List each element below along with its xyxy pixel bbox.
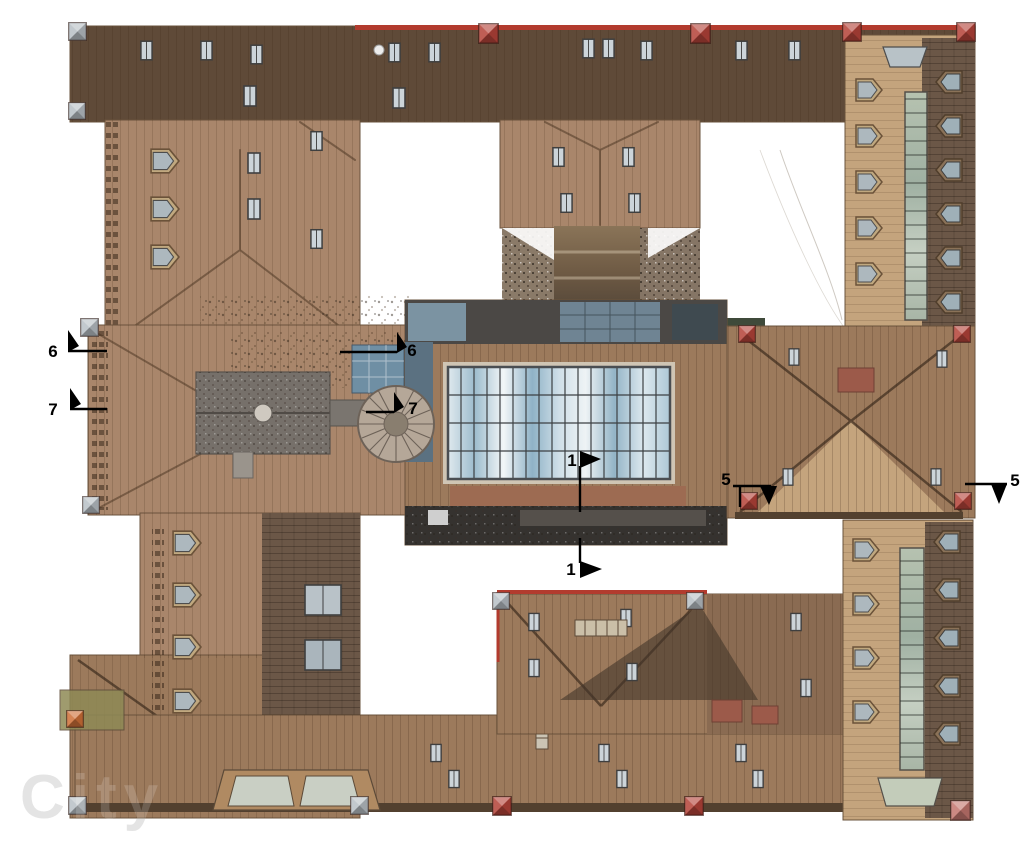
corner-turret-pink <box>951 801 971 821</box>
section-label: 1 <box>566 560 575 579</box>
corner-turret-orange <box>67 711 84 728</box>
chimney-bank <box>575 620 627 636</box>
section-flag <box>580 561 602 578</box>
skylight <box>789 349 799 365</box>
section-label: 6 <box>48 342 57 361</box>
skylight <box>553 148 564 167</box>
corner-turret-gray <box>69 797 87 815</box>
skylight <box>783 469 793 485</box>
skylight <box>641 41 652 60</box>
skylight <box>753 770 763 787</box>
church-tower-stub <box>233 452 253 478</box>
building-orthophoto: 6 7 6 7 1 <box>0 0 1024 843</box>
corner-turret-gray <box>687 593 704 610</box>
corner-turret-red <box>741 493 758 510</box>
skylight <box>244 86 256 106</box>
skylight <box>931 469 941 485</box>
lower-roof-band <box>450 486 686 506</box>
brick-roof-hatch <box>838 368 874 392</box>
corner-turret-red <box>957 23 976 42</box>
skylight <box>561 194 572 213</box>
skylight <box>449 770 459 787</box>
corner-turret-red <box>955 493 972 510</box>
wire-artifact <box>760 150 846 330</box>
skylight <box>311 132 322 151</box>
section-label: 5 <box>721 470 730 489</box>
bottom-right-wing-roof <box>843 520 973 820</box>
skylight <box>248 153 260 173</box>
top-center-wing-roof <box>500 120 700 228</box>
top-roof-strip <box>70 25 975 122</box>
skylight <box>529 613 539 630</box>
skylight <box>629 194 640 213</box>
skylight <box>599 744 609 761</box>
corner-turret-red <box>954 326 971 343</box>
section-flag <box>68 330 79 352</box>
corner-turret-gray <box>83 497 100 514</box>
skylight <box>583 39 594 58</box>
skylight <box>431 744 441 761</box>
section-label: 5 <box>1010 471 1019 490</box>
corner-turret-red <box>493 797 512 816</box>
skylight <box>141 41 152 60</box>
corner-turret-gray <box>81 319 99 337</box>
section-flag <box>991 484 1007 504</box>
skylight <box>603 39 614 58</box>
skylight <box>251 45 262 64</box>
skylight <box>736 41 747 60</box>
top-right-wing-roof <box>845 35 975 332</box>
roof-skylight-pentagon <box>878 778 942 806</box>
skylight <box>627 663 637 680</box>
section-label: 7 <box>48 400 57 419</box>
section-label: 7 <box>408 399 417 418</box>
corner-turret-red <box>685 797 704 816</box>
skylight <box>937 351 947 367</box>
section-label: 6 <box>407 341 416 360</box>
skylight <box>623 148 634 167</box>
section-label: 1 <box>567 451 576 470</box>
dome-lantern <box>384 412 408 436</box>
corner-turret-gray <box>69 103 86 120</box>
roof-antenna-ball <box>374 45 384 55</box>
church-cupola <box>254 404 272 422</box>
skylight <box>801 679 811 696</box>
skylight <box>393 88 405 108</box>
brick-chimney <box>752 706 778 724</box>
skylight <box>617 770 627 787</box>
corner-turret-gray <box>351 797 369 815</box>
corner-turret-red <box>843 23 862 42</box>
corner-turret-gray <box>69 23 87 41</box>
brick-chimney <box>712 700 742 722</box>
section-flag <box>70 388 81 410</box>
corner-turret-red <box>479 24 499 44</box>
wire-artifact <box>780 150 842 320</box>
corner-turret-red <box>739 326 756 343</box>
skylight <box>529 659 539 676</box>
corner-turret-red <box>691 24 711 44</box>
roof-skylight-pentagon <box>883 47 927 67</box>
skylight <box>248 199 260 219</box>
orthophoto-canvas: City <box>0 0 1024 843</box>
skylight <box>791 613 801 630</box>
bottom-center-wing-roof <box>497 592 855 734</box>
skylight <box>789 41 800 60</box>
skylight <box>201 41 212 60</box>
skylight <box>736 744 746 761</box>
skylight <box>311 230 322 249</box>
top-left-wing-roof <box>105 86 420 350</box>
corner-turret-gray <box>493 593 510 610</box>
skylight <box>429 43 440 62</box>
central-glass-atrium-block <box>405 300 727 545</box>
skylight <box>389 43 400 62</box>
